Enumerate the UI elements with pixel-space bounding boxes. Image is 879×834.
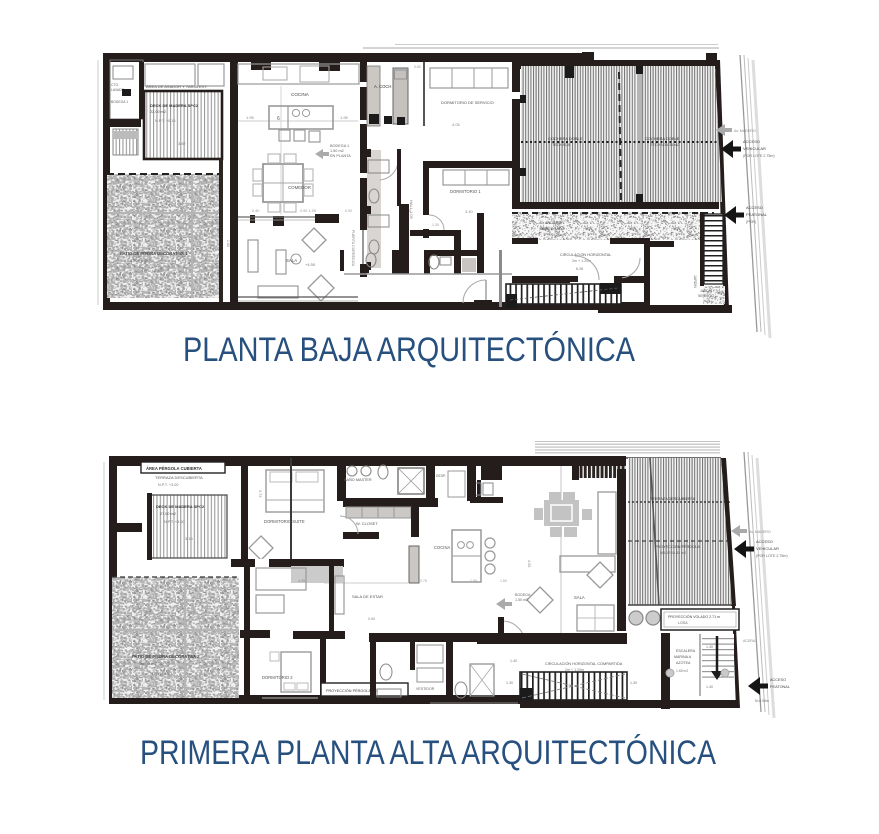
svg-text:SALA: SALA [574, 595, 585, 600]
svg-text:3.40: 3.40 [465, 209, 474, 214]
svg-text:0.40: 0.40 [252, 209, 259, 213]
svg-text:(POR LOTE 2.75m): (POR LOTE 2.75m) [743, 154, 775, 158]
svg-text:1.50 m2: 1.50 m2 [515, 598, 528, 602]
svg-text:JARDÍN: JARDÍN [693, 275, 697, 288]
svg-text:3.15: 3.15 [185, 536, 194, 541]
svg-text:MADERA 35 m2: MADERA 35 m2 [660, 551, 686, 555]
svg-text:1.40: 1.40 [706, 645, 713, 649]
svg-text:33.00 m2: 33.00 m2 [130, 258, 147, 263]
svg-text:1.95: 1.95 [246, 115, 255, 120]
svg-text:ACCESO: ACCESO [756, 539, 773, 544]
svg-text:TERRAZA DESCUBIERTA: TERRAZA DESCUBIERTA [650, 497, 696, 501]
svg-text:PROYECCIÓN VOLADO 2.71 m: PROYECCIÓN VOLADO 2.71 m [668, 614, 720, 619]
svg-text:BODEGA 1: BODEGA 1 [111, 100, 128, 104]
svg-text:W. CLOSET: W. CLOSET [356, 521, 378, 526]
svg-text:DECK DE MADERA SPC2: DECK DE MADERA SPC2 [156, 504, 205, 509]
svg-text:EMPEDRADO: EMPEDRADO [540, 227, 565, 231]
svg-text:ACCESO: ACCESO [743, 139, 760, 144]
svg-text:(POR): (POR) [746, 220, 756, 224]
svg-text:ACERA: ACERA [743, 639, 756, 643]
svg-text:PATIO DE PIEDRA DECORATIVA 2: PATIO DE PIEDRA DECORATIVA 2 [132, 654, 200, 659]
svg-text:CTO.: CTO. [111, 83, 119, 87]
svg-text:DORMITORIO 2: DORMITORIO 2 [262, 675, 293, 680]
svg-text:1.30: 1.30 [432, 223, 439, 227]
svg-text:Av. MADERO: Av. MADERO [734, 129, 756, 133]
svg-text:N.P.T. +3.00: N.P.T. +3.00 [158, 483, 179, 487]
svg-text:PATIO DE PIEDRA DECORATIVA 1: PATIO DE PIEDRA DECORATIVA 1 [120, 251, 188, 256]
svg-text:2.75: 2.75 [420, 579, 427, 583]
svg-text:9.15: 9.15 [548, 233, 555, 237]
svg-text:6: 6 [277, 116, 280, 122]
svg-text:26.00 m2: 26.00 m2 [140, 661, 157, 666]
svg-text:DECK DE MADERA SPC2: DECK DE MADERA SPC2 [150, 103, 199, 108]
svg-text:TECHADA: TECHADA [552, 143, 571, 147]
svg-text:COMEDOR: COMEDOR [288, 185, 311, 190]
svg-text:4.05: 4.05 [298, 579, 305, 583]
svg-text:N.P.T. +0.10: N.P.T. +0.10 [140, 268, 162, 273]
svg-text:COCHERA DOBLE: COCHERA DOBLE [548, 136, 583, 141]
svg-text:0.60: 0.60 [368, 617, 375, 621]
svg-text:4.50: 4.50 [158, 196, 167, 201]
svg-text:2.60: 2.60 [226, 240, 230, 247]
svg-text:SALA DE ESTAR: SALA DE ESTAR [352, 594, 383, 599]
svg-text:ÁREA PÉRGOLA CUBIERTA: ÁREA PÉRGOLA CUBIERTA [146, 466, 202, 471]
svg-text:DORMITORIO SUITE: DORMITORIO SUITE [264, 519, 305, 524]
svg-text:+4.50: +4.50 [305, 262, 316, 267]
svg-text:COCHERA DOBLE: COCHERA DOBLE [645, 136, 680, 141]
svg-text:ESCALERA: ESCALERA [676, 649, 696, 653]
svg-text:6.28: 6.28 [576, 267, 583, 271]
svg-text:VESTIDOR: VESTIDOR [416, 687, 435, 691]
svg-text:4.55: 4.55 [527, 560, 531, 567]
svg-text:BAÑO MASTER: BAÑO MASTER [344, 477, 372, 482]
svg-text:DORMITORIO DE SERVICIO: DORMITORIO DE SERVICIO [441, 100, 494, 105]
svg-text:BODEGA 1: BODEGA 1 [330, 144, 349, 148]
svg-text:1.40: 1.40 [510, 659, 517, 663]
svg-text:1.95: 1.95 [340, 115, 349, 120]
svg-text:SALA: SALA [286, 258, 297, 263]
svg-text:PLANTA BAJA ARQUITECTÓNICA: PLANTA BAJA ARQUITECTÓNICA [183, 330, 635, 369]
svg-text:PEATONAL: PEATONAL [770, 685, 790, 689]
svg-text:0.90: 0.90 [345, 209, 352, 213]
svg-text:1.50: 1.50 [500, 579, 507, 583]
svg-text:N.P.T. +0.15: N.P.T. +0.15 [155, 119, 176, 123]
svg-text:4.05: 4.05 [452, 122, 461, 127]
svg-text:LOSA: LOSA [678, 621, 688, 625]
svg-text:3.73: 3.73 [258, 490, 262, 497]
svg-text:1.40: 1.40 [706, 685, 713, 689]
svg-text:CIRCULACIÓN HORIZONTAL: CIRCULACIÓN HORIZONTAL [560, 252, 611, 257]
svg-text:N.P.T. +3.00: N.P.T. +3.00 [164, 520, 185, 524]
svg-text:ACCESO: ACCESO [770, 678, 786, 682]
svg-text:1.30: 1.30 [506, 681, 513, 685]
svg-text:ACCESO: ACCESO [746, 205, 763, 210]
svg-text:HALL 1.05: HALL 1.05 [409, 200, 414, 220]
svg-text:CIRCULACIÓN HORIZONTAL COMPART: CIRCULACIÓN HORIZONTAL COMPARTIDA [545, 661, 623, 666]
svg-text:COCINA: COCINA [434, 545, 450, 550]
svg-text:TECHADA 35 m2: TECHADA 35 m2 [650, 143, 680, 147]
svg-text:22.00 m2: 22.00 m2 [150, 110, 166, 114]
svg-text:VEHICULAR: VEHICULAR [743, 146, 766, 151]
svg-text:1.30: 1.30 [630, 681, 637, 685]
svg-text:PUERTA CORREDIZA: PUERTA CORREDIZA [351, 230, 355, 267]
svg-text:DESP.: DESP. [436, 474, 446, 478]
svg-text:Av. MADERO: Av. MADERO [749, 530, 771, 534]
svg-text:ÁREA DE ASADOR Y TARJA EXT.: ÁREA DE ASADOR Y TARJA EXT. [146, 84, 208, 89]
svg-text:EN PLANTA: EN PLANTA [330, 154, 351, 158]
svg-text:PROYECCIÓN PÉRGOLA: PROYECCIÓN PÉRGOLA [655, 544, 700, 549]
svg-text:A. COCH: A. COCH [374, 84, 391, 89]
svg-text:DORMITORIO 1: DORMITORIO 1 [450, 189, 481, 194]
svg-text:PEATONAL: PEATONAL [746, 212, 768, 217]
svg-text:SERVICIO: SERVICIO [698, 294, 715, 298]
svg-text:1.90: 1.90 [470, 579, 477, 583]
svg-text:MARINA A: MARINA A [674, 655, 692, 659]
svg-text:3.87: 3.87 [178, 141, 187, 146]
svg-text:VEHICULAR: VEHICULAR [756, 546, 779, 551]
svg-text:0.80: 0.80 [414, 65, 421, 69]
svg-text:0.90 1.95: 0.90 1.95 [300, 209, 316, 213]
svg-text:4.55: 4.55 [145, 608, 154, 613]
svg-text:COCINA: COCINA [291, 92, 310, 97]
svg-text:1.50 m2: 1.50 m2 [330, 149, 344, 153]
svg-text:BODEGA: BODEGA [515, 593, 531, 597]
svg-text:N=0.00m: N=0.00m [755, 699, 769, 703]
svg-text:N.P.T. +0.10: N.P.T. +0.10 [150, 671, 172, 676]
svg-text:TERRAZA DESCUBIERTA: TERRAZA DESCUBIERTA [155, 475, 203, 480]
svg-text:1.65 m2: 1.65 m2 [676, 669, 688, 673]
svg-text:ANDADOR: ANDADOR [545, 221, 564, 225]
svg-text:JARDÍN: JARDÍN [700, 289, 713, 293]
svg-text:PRIMERA PLANTA ALTA ARQUITECTÓ: PRIMERA PLANTA ALTA ARQUITECTÓNICA [140, 733, 716, 772]
svg-text:(POR LOTE 2.75m): (POR LOTE 2.75m) [756, 554, 788, 558]
svg-text:AZOTEA: AZOTEA [676, 661, 691, 665]
svg-text:27.00 m2: 27.00 m2 [160, 512, 176, 516]
